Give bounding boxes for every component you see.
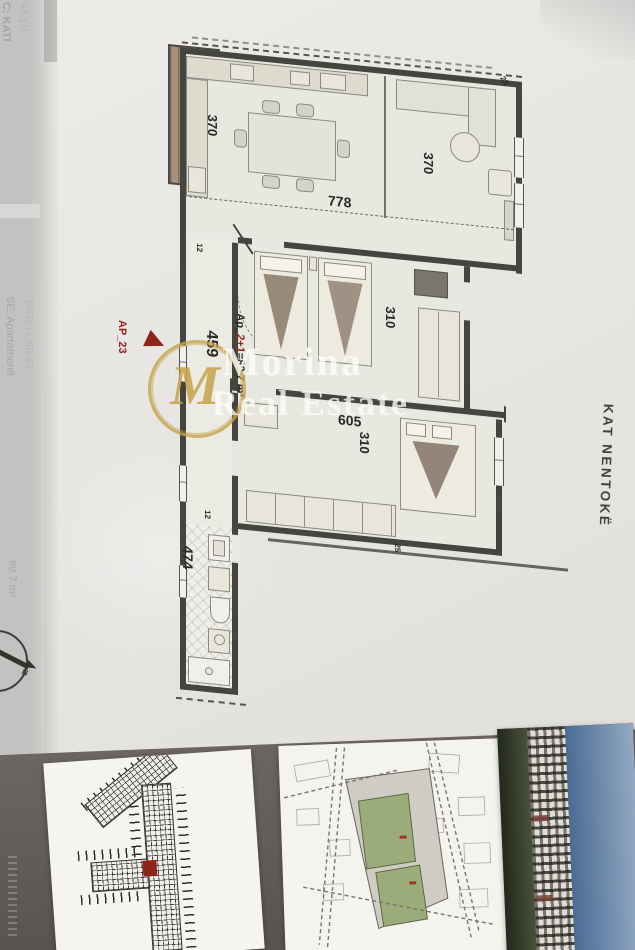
left-page-notch xyxy=(0,204,40,218)
sink xyxy=(290,70,310,86)
dim-bedroom2-depth: 310 xyxy=(357,431,372,454)
building-photo-thumbnail xyxy=(497,723,635,950)
window-bedroom2 xyxy=(494,437,504,486)
partition-line xyxy=(384,76,386,218)
armchair xyxy=(488,169,512,197)
toilet xyxy=(210,596,230,624)
chair-1 xyxy=(262,100,280,115)
edge-area-text: 89.7 m² xyxy=(6,560,18,597)
dim-bath-wall: 12 xyxy=(203,510,212,520)
window-living-1 xyxy=(514,137,524,178)
chair-2 xyxy=(296,103,314,118)
window-hall-2 xyxy=(179,465,187,502)
edge-unit-text: PNTI +1 NR-23 xyxy=(23,300,34,369)
chair-3 xyxy=(262,175,280,190)
wardrobe-bedroom1 xyxy=(418,307,460,401)
watermark-brand-line1: Morina xyxy=(222,338,363,385)
dim-top-width: 778 xyxy=(328,192,351,210)
wall-terrace-b xyxy=(464,320,470,411)
highlighted-unit xyxy=(142,860,157,877)
dim-bedroom1-depth: 310 xyxy=(383,306,398,329)
wall-hall-right-low xyxy=(232,476,238,530)
dim-bath-length: 474 xyxy=(180,545,196,570)
nightstand xyxy=(309,256,317,271)
dresser xyxy=(414,269,448,298)
wardrobe-split xyxy=(438,311,439,397)
site-map-drawing xyxy=(278,738,507,950)
wall-bath-right-b xyxy=(232,563,238,692)
bath-bottom-dash xyxy=(176,697,246,706)
building-plan-thumbnail xyxy=(43,749,264,950)
tv-unit xyxy=(504,200,514,241)
sink-2 xyxy=(320,72,346,91)
wall-bath-right-a xyxy=(232,529,238,536)
dim-hall-wall-top: 12 xyxy=(195,243,204,253)
pillow-4 xyxy=(432,425,452,440)
watermark-brand-line2: Real Estate xyxy=(212,382,409,424)
listing-photo: RA 1/4 C: KATI SE: Apartamenti PNTI +1 N… xyxy=(0,0,635,950)
wall-terrace-a xyxy=(464,266,470,283)
edge-header-small: RA 1/4 xyxy=(17,2,28,32)
window-bath xyxy=(179,565,187,598)
chair-5 xyxy=(234,129,247,148)
washing-machine-drum xyxy=(214,634,225,646)
page-fold-shadow xyxy=(44,0,59,764)
area-prefix: Ap_ xyxy=(234,313,246,335)
photo-balcony-accent-1 xyxy=(533,815,549,822)
stove xyxy=(230,63,254,81)
photo-sky xyxy=(565,723,635,950)
photo-balcony-accent-2 xyxy=(536,895,552,902)
window-living-2 xyxy=(514,183,524,228)
pillow-3 xyxy=(406,422,426,437)
bath-sink-basin xyxy=(213,540,225,557)
edge-apartment-text: SE: Apartamenti xyxy=(4,296,16,376)
building-wing-left xyxy=(90,858,150,892)
dim-bedroom2-corner: 25 xyxy=(393,543,402,553)
chair-6 xyxy=(337,139,350,158)
bath-cabinet xyxy=(208,566,230,592)
illegible-phone-text xyxy=(8,852,17,936)
plan-ticks-5 xyxy=(81,891,144,905)
divider-tick-right xyxy=(504,406,506,422)
dining-table xyxy=(248,112,336,181)
dim-living-depth: 370 xyxy=(421,152,436,175)
dim-kitchen-depth: 370 xyxy=(205,114,220,137)
edge-header-bold: C: KATI xyxy=(0,2,12,42)
shower-drain xyxy=(205,667,213,676)
chair-4 xyxy=(296,178,314,193)
unit-marker-label: AP_23 xyxy=(116,320,128,354)
fridge xyxy=(188,166,206,194)
site-map-thumbnail xyxy=(278,738,507,950)
